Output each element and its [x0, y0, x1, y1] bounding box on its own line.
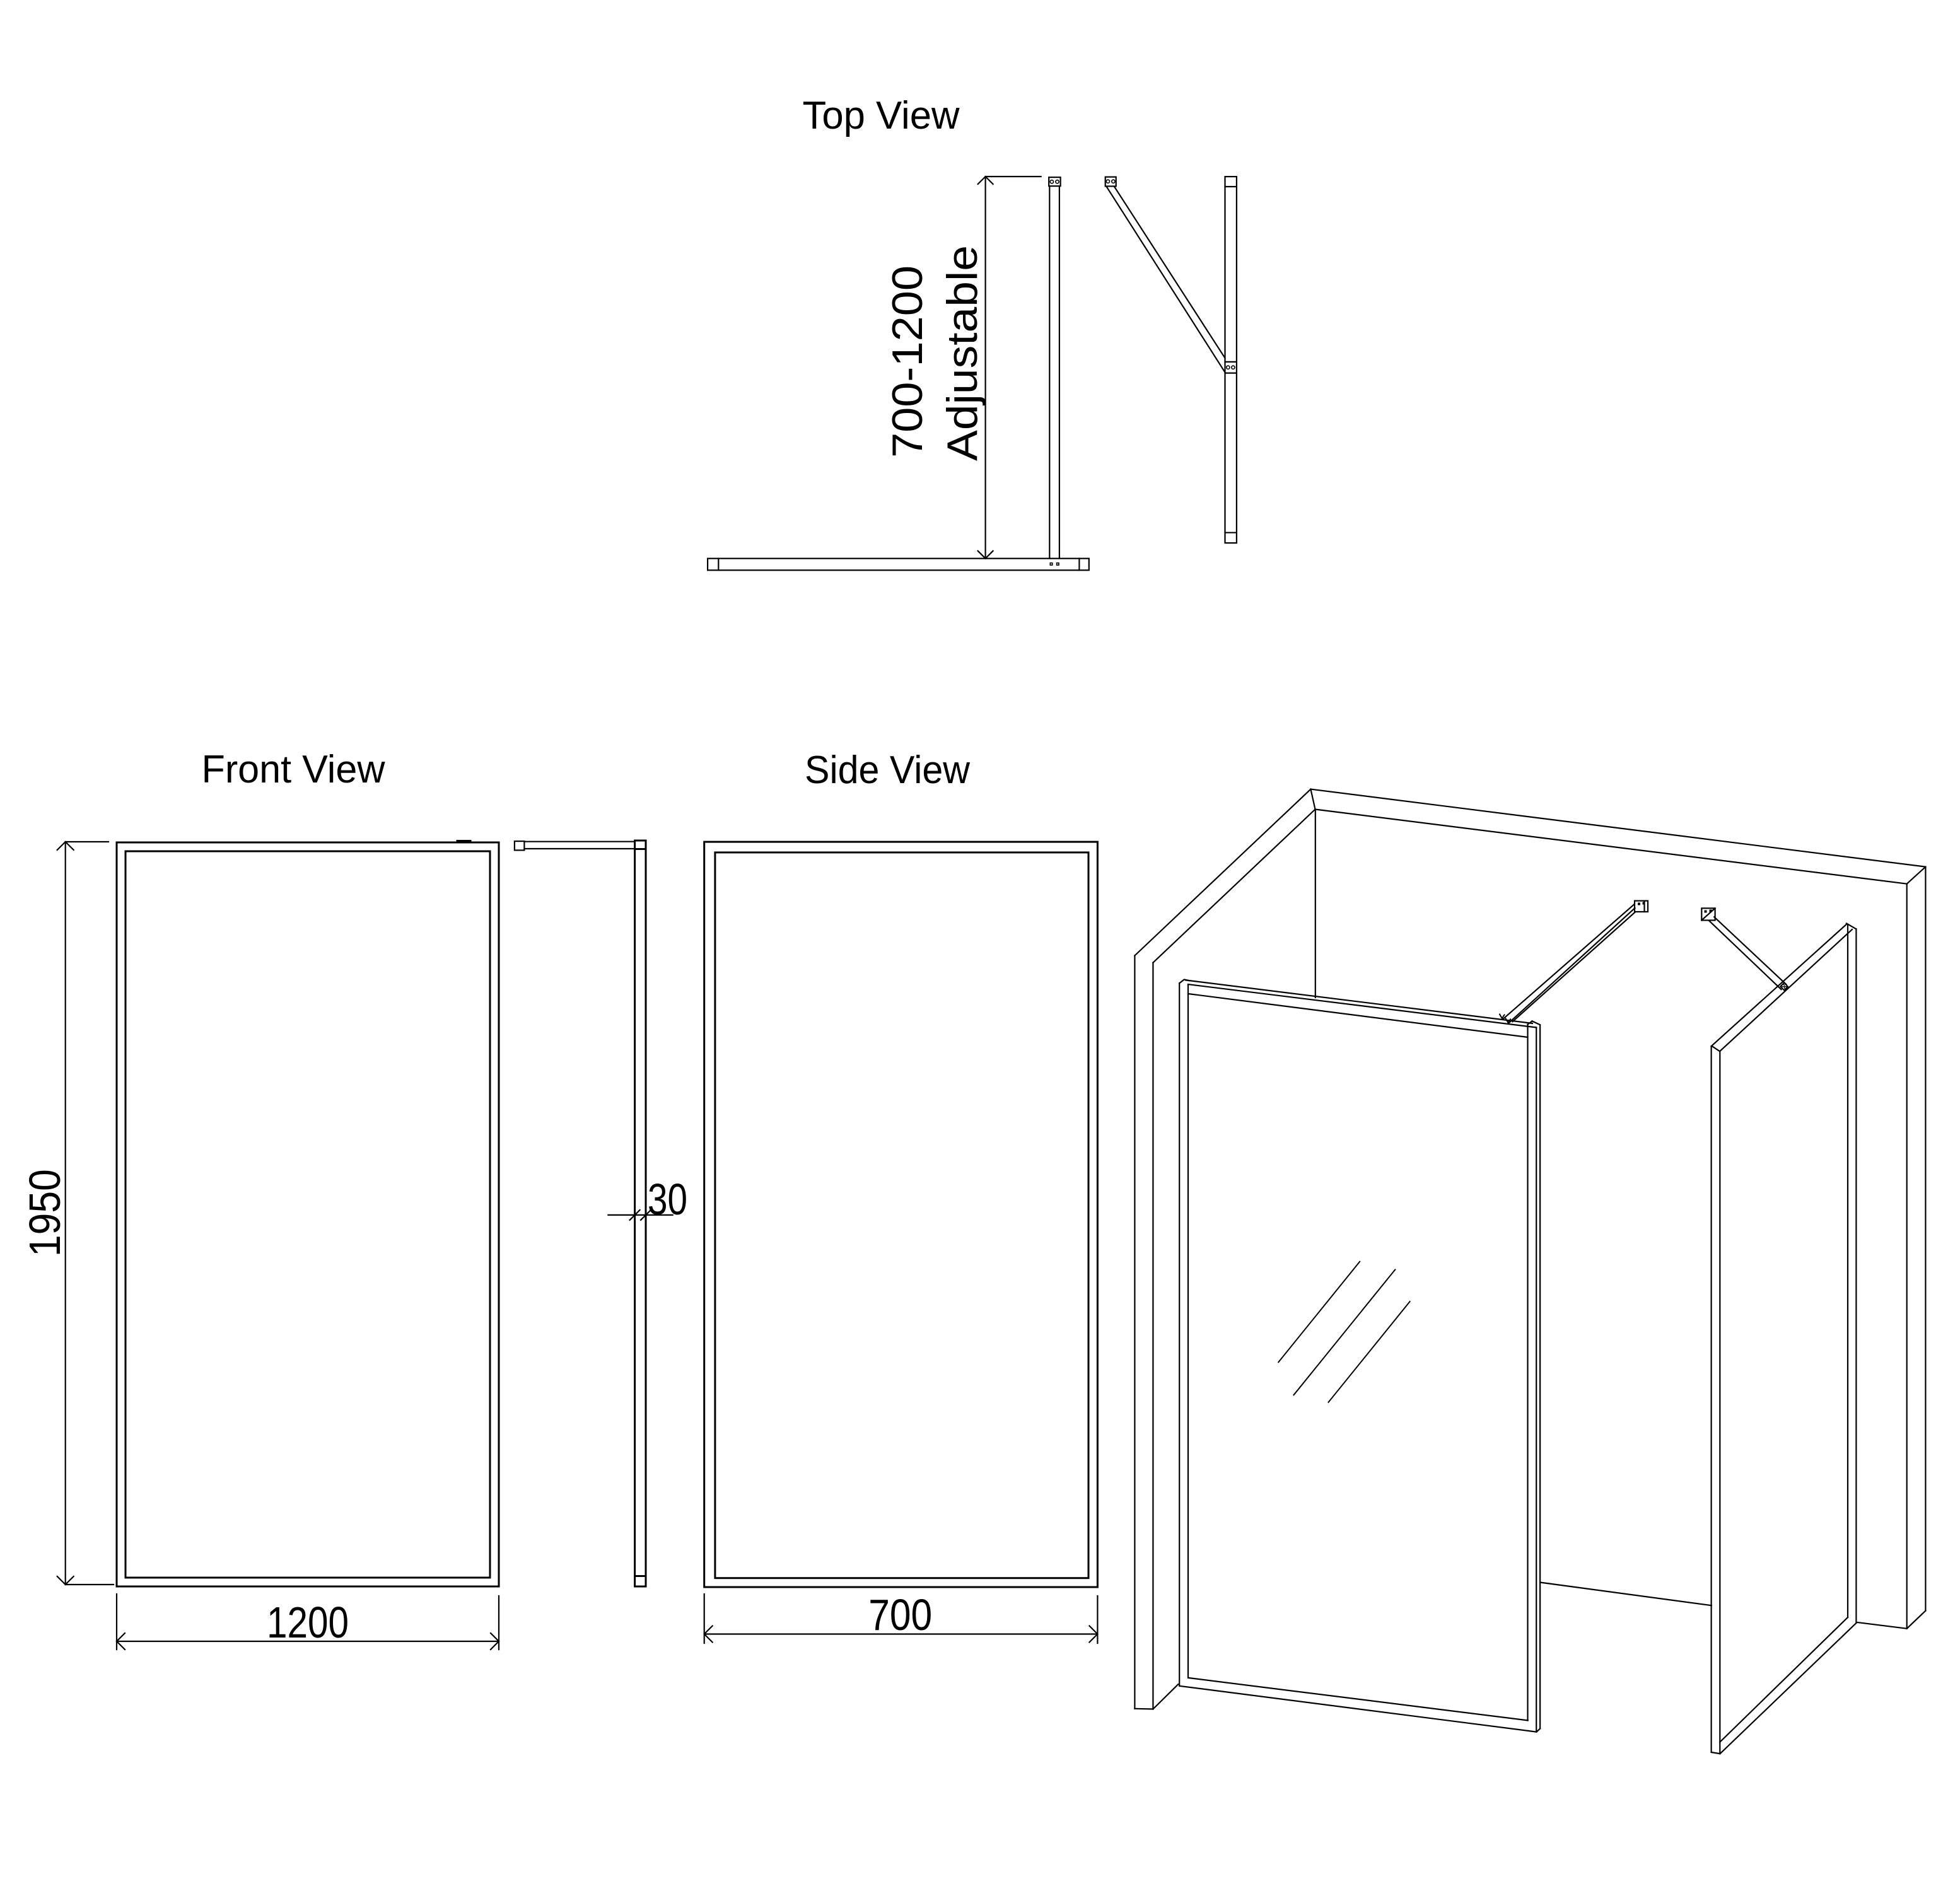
svg-text:700-1200: 700-1200	[884, 265, 931, 458]
svg-text:Top View: Top View	[803, 94, 960, 137]
svg-text:1950: 1950	[20, 1169, 69, 1257]
svg-text:Adjustable: Adjustable	[938, 245, 986, 461]
svg-text:Front View: Front View	[202, 748, 385, 791]
svg-text:700: 700	[868, 1590, 932, 1639]
svg-text:Side View: Side View	[805, 748, 970, 792]
svg-text:30: 30	[648, 1175, 687, 1224]
svg-text:1200: 1200	[267, 1598, 349, 1647]
